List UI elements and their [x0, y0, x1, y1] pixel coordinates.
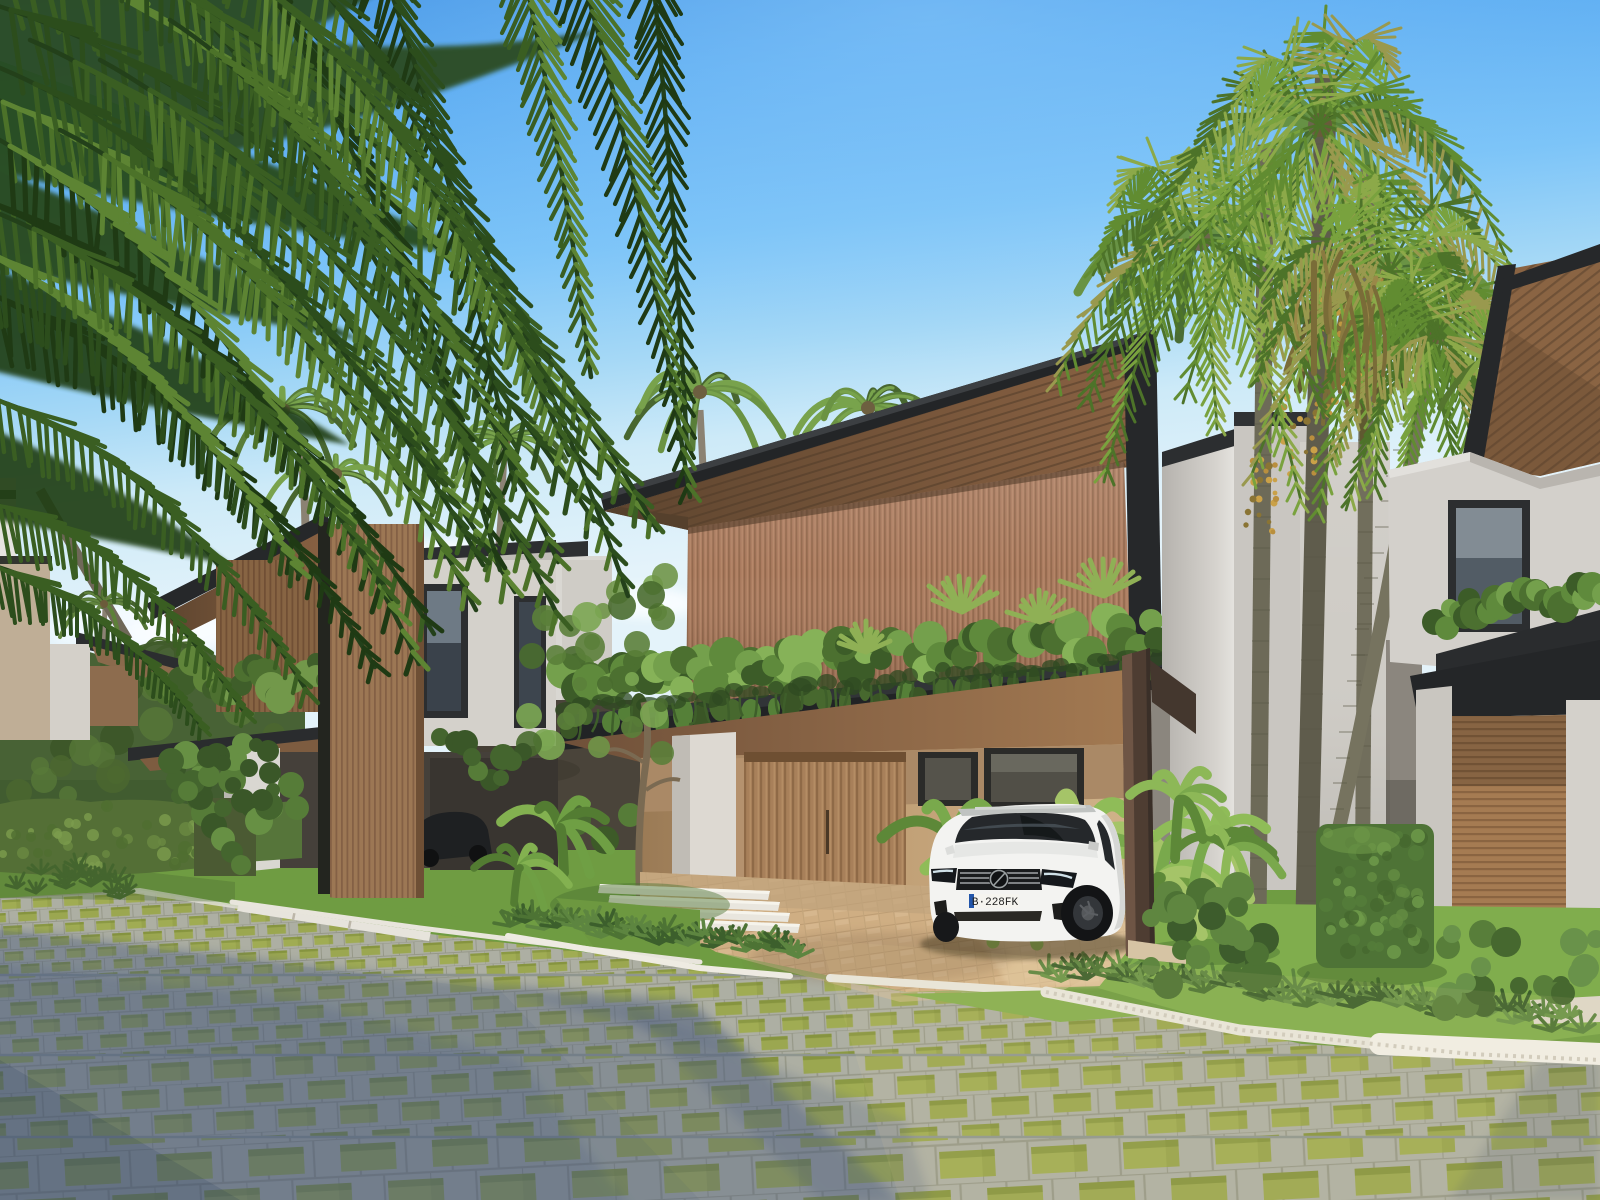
svg-text:B·228FK: B·228FK [972, 897, 1019, 909]
